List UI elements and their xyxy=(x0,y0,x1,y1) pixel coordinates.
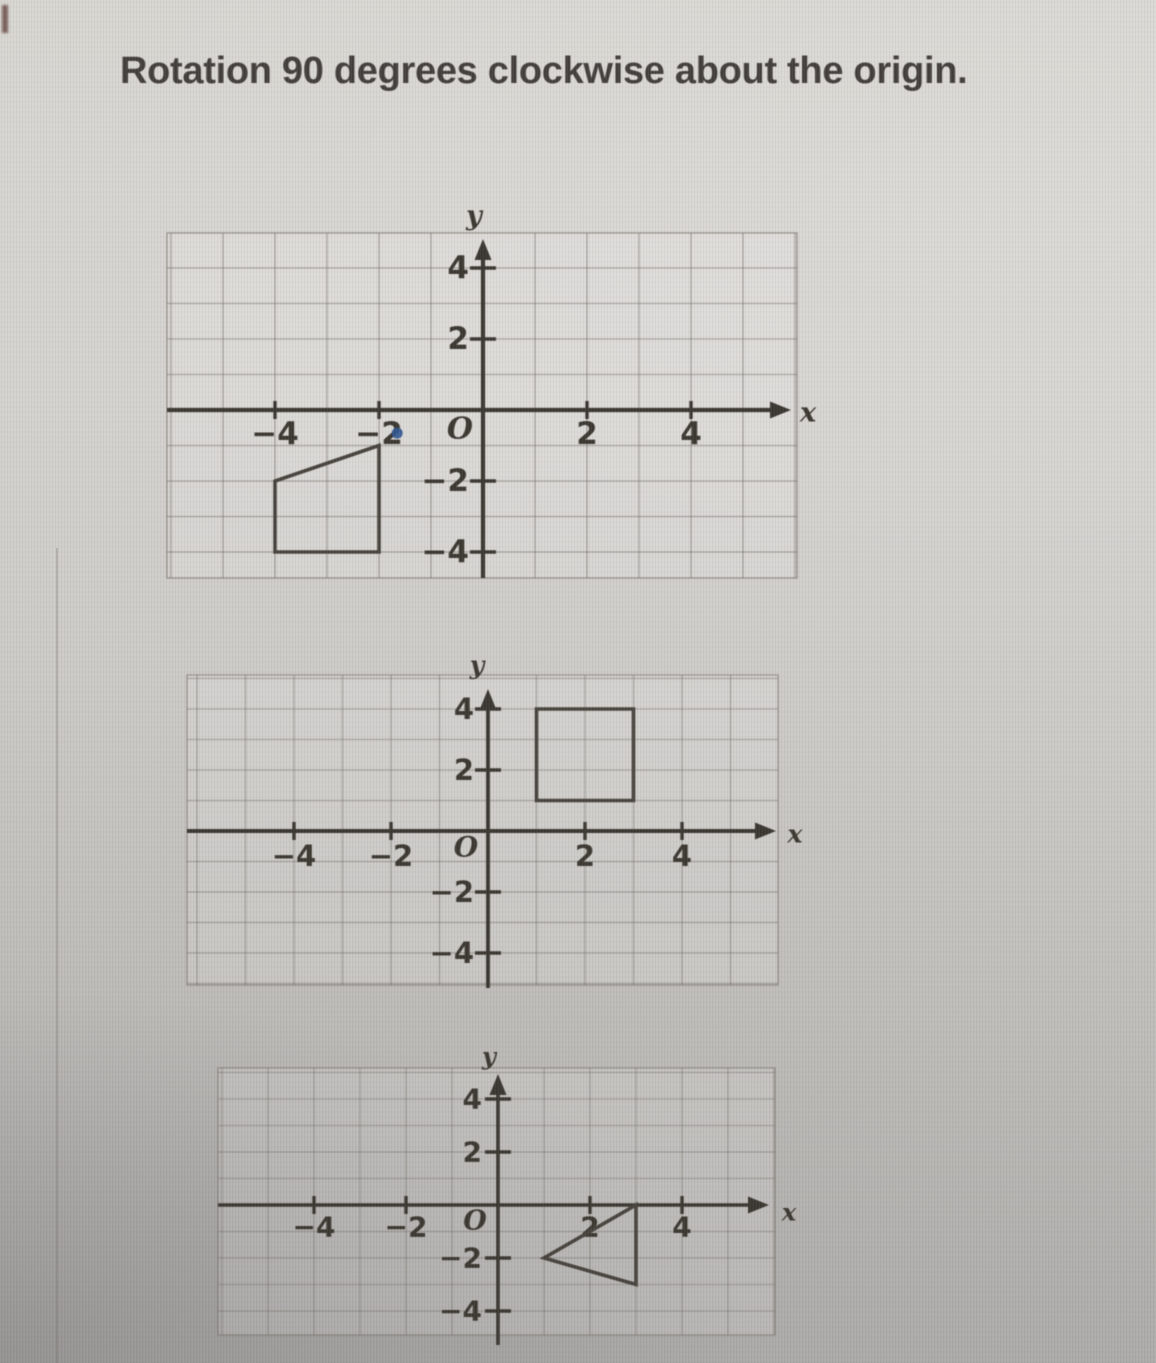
origin-label: O xyxy=(463,1206,487,1237)
page-edge-line xyxy=(56,548,58,1363)
y-tick-label: −4 xyxy=(439,1295,482,1328)
worksheet-photo: Rotation 90 degrees clockwise about the … xyxy=(0,0,1156,1363)
x-tick-label: 4 xyxy=(672,1211,691,1244)
x-axis-label: x xyxy=(781,1198,797,1227)
graph-option-triangle: −4−22442−2−4Oxy xyxy=(0,0,1156,1363)
y-tick-label: 2 xyxy=(463,1136,482,1169)
x-tick-label: −4 xyxy=(293,1211,336,1244)
x-tick-label: −2 xyxy=(385,1211,428,1244)
photo-corner-artifact xyxy=(2,5,8,33)
y-tick-label: 4 xyxy=(463,1083,482,1116)
y-tick-label: −2 xyxy=(439,1242,482,1275)
y-axis-label: y xyxy=(481,1042,498,1071)
